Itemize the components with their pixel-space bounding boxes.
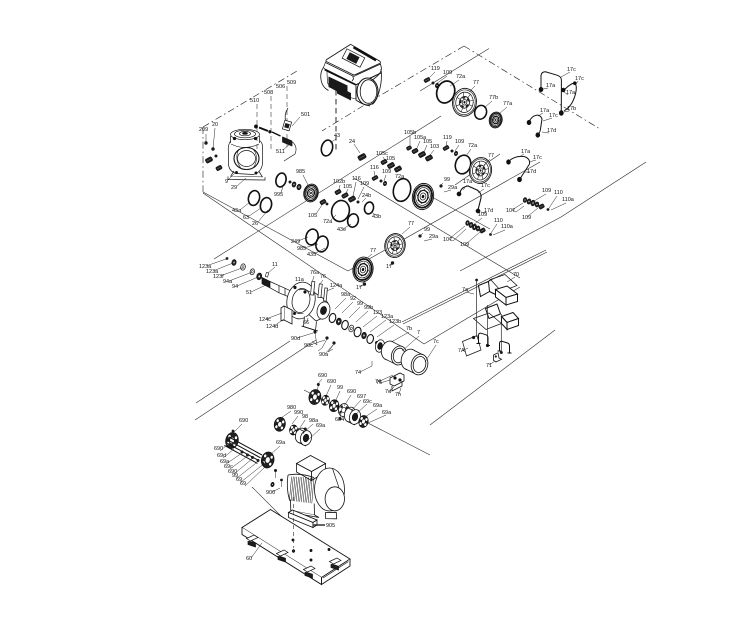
svg-text:109: 109	[382, 169, 391, 175]
svg-text:70: 70	[513, 272, 519, 278]
svg-text:510: 510	[250, 98, 259, 104]
svg-text:7: 7	[417, 330, 420, 336]
svg-text:109: 109	[522, 215, 531, 221]
svg-text:209: 209	[199, 127, 208, 133]
svg-text:76: 76	[376, 380, 382, 386]
svg-text:17a: 17a	[566, 90, 576, 96]
svg-text:690: 690	[327, 379, 336, 385]
svg-text:17c: 17c	[549, 113, 558, 119]
svg-text:9: 9	[225, 179, 228, 185]
svg-text:90a: 90a	[319, 352, 329, 358]
svg-text:90d: 90d	[291, 336, 300, 342]
svg-text:69a: 69a	[276, 440, 286, 446]
svg-text:7A: 7A	[458, 348, 465, 354]
svg-text:99: 99	[424, 227, 430, 233]
svg-text:7b: 7b	[406, 326, 412, 332]
svg-text:29: 29	[231, 185, 237, 191]
svg-text:509: 509	[287, 80, 296, 86]
svg-text:92: 92	[350, 296, 356, 302]
svg-text:7a: 7a	[462, 287, 469, 293]
svg-text:76a: 76a	[310, 270, 320, 276]
svg-text:105: 105	[343, 184, 352, 190]
svg-text:29a: 29a	[429, 234, 439, 240]
svg-text:77: 77	[370, 248, 376, 254]
svg-text:60: 60	[246, 556, 252, 562]
svg-text:43b: 43b	[372, 214, 381, 220]
svg-text:17: 17	[386, 264, 392, 270]
svg-text:29a: 29a	[448, 185, 458, 191]
svg-text:690: 690	[347, 389, 356, 395]
svg-text:7d: 7d	[385, 389, 391, 395]
svg-text:63: 63	[243, 215, 249, 221]
svg-text:109: 109	[443, 70, 452, 76]
svg-text:110a: 110a	[501, 224, 514, 230]
svg-text:109: 109	[460, 242, 469, 248]
svg-text:77b: 77b	[489, 95, 498, 101]
svg-text:7h: 7h	[395, 392, 401, 398]
svg-text:77: 77	[408, 221, 414, 227]
svg-text:124a: 124a	[330, 283, 343, 289]
svg-text:72a: 72a	[323, 219, 333, 225]
svg-text:690: 690	[239, 418, 248, 424]
svg-text:116: 116	[370, 165, 379, 171]
svg-text:905: 905	[326, 523, 335, 529]
svg-text:506: 506	[276, 84, 285, 90]
svg-text:109: 109	[478, 212, 487, 218]
svg-text:985: 985	[296, 169, 305, 175]
svg-text:51: 51	[246, 290, 252, 296]
svg-text:103: 103	[430, 144, 439, 150]
svg-text:66: 66	[303, 320, 309, 326]
svg-text:690: 690	[318, 373, 327, 379]
svg-text:249: 249	[291, 239, 300, 245]
svg-text:72a: 72a	[468, 143, 478, 149]
svg-text:508: 508	[264, 90, 273, 96]
svg-text:77: 77	[488, 153, 494, 159]
svg-text:109: 109	[360, 181, 369, 187]
svg-text:17c: 17c	[533, 155, 542, 161]
svg-text:26: 26	[252, 221, 258, 227]
svg-text:110a: 110a	[562, 197, 575, 203]
svg-text:98: 98	[302, 414, 308, 420]
svg-text:17c: 17c	[567, 67, 576, 73]
svg-text:995: 995	[274, 192, 283, 198]
svg-text:435: 435	[307, 252, 316, 258]
svg-text:69a: 69a	[316, 423, 326, 429]
svg-text:90c: 90c	[304, 343, 313, 349]
svg-text:72a: 72a	[456, 74, 466, 80]
svg-text:985: 985	[297, 246, 306, 252]
svg-text:69a: 69a	[382, 410, 392, 416]
svg-text:24b: 24b	[362, 193, 371, 199]
svg-text:119: 119	[443, 135, 452, 141]
svg-text:105: 105	[386, 156, 395, 162]
svg-text:119: 119	[431, 66, 440, 72]
svg-text:20: 20	[212, 122, 218, 128]
svg-text:43: 43	[334, 133, 340, 139]
svg-text:99: 99	[444, 177, 450, 183]
svg-text:690: 690	[214, 446, 223, 452]
svg-text:74: 74	[355, 370, 361, 376]
svg-text:109: 109	[455, 139, 464, 145]
svg-text:69a: 69a	[373, 403, 383, 409]
svg-text:77a: 77a	[503, 101, 513, 107]
svg-text:99b: 99b	[364, 305, 373, 311]
svg-text:17a: 17a	[521, 149, 531, 155]
svg-text:17c: 17c	[481, 183, 490, 189]
svg-text:110: 110	[554, 190, 563, 196]
svg-text:17a: 17a	[463, 179, 473, 185]
svg-text:17c: 17c	[575, 76, 584, 82]
svg-text:77: 77	[473, 80, 479, 86]
svg-text:99: 99	[337, 385, 343, 391]
svg-text:7c: 7c	[433, 339, 439, 345]
svg-text:501: 501	[301, 112, 310, 118]
svg-text:124d: 124d	[266, 324, 278, 330]
svg-text:123b: 123b	[389, 319, 401, 325]
svg-text:71: 71	[486, 363, 492, 369]
svg-text:94: 94	[232, 284, 238, 290]
svg-text:69c: 69c	[363, 399, 372, 405]
svg-text:105: 105	[308, 213, 317, 219]
svg-text:109: 109	[542, 188, 551, 194]
svg-text:76: 76	[320, 274, 326, 280]
svg-text:43a: 43a	[232, 208, 242, 214]
svg-text:99: 99	[357, 301, 363, 307]
